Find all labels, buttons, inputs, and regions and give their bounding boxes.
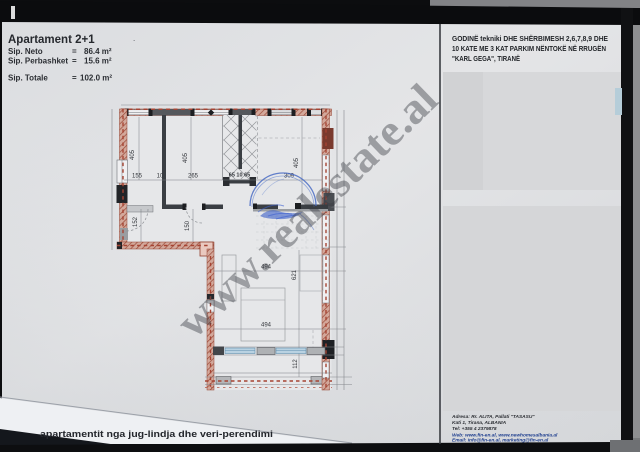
svg-text:621: 621 bbox=[292, 269, 298, 280]
svg-text:.: . bbox=[133, 34, 135, 43]
svg-text:=: = bbox=[72, 74, 77, 83]
svg-text:112: 112 bbox=[293, 359, 299, 369]
svg-text:Kati 1, Tirana, ALBANIA: Kati 1, Tirana, ALBANIA bbox=[452, 420, 507, 426]
svg-text:405: 405 bbox=[183, 152, 189, 163]
svg-text:15.6 m²: 15.6 m² bbox=[84, 57, 112, 66]
svg-text:Tel: +355 4 2379878: Tel: +355 4 2379878 bbox=[452, 426, 497, 432]
svg-text:65 10 65: 65 10 65 bbox=[229, 173, 250, 179]
svg-text:152: 152 bbox=[133, 216, 139, 227]
svg-text:apartamentit nga jug-lindja dh: apartamentit nga jug-lindja dhe veri-per… bbox=[40, 429, 273, 439]
svg-text:86.4 m²: 86.4 m² bbox=[84, 47, 112, 56]
svg-text:GODINË tekniki DHE SHËRBIMESH: GODINË tekniki DHE SHËRBIMESH 2,6,7,8,9 … bbox=[452, 34, 608, 43]
svg-text:10: 10 bbox=[157, 174, 164, 180]
svg-text:102.0 m²: 102.0 m² bbox=[80, 74, 112, 83]
svg-text:Apartament 2+1: Apartament 2+1 bbox=[8, 34, 95, 46]
svg-text:Sip. Neto: Sip. Neto bbox=[8, 47, 43, 56]
svg-text:Sip. Perbashket: Sip. Perbashket bbox=[8, 57, 68, 66]
svg-text:Sip. Totale: Sip. Totale bbox=[8, 74, 48, 83]
svg-text:405: 405 bbox=[130, 149, 136, 160]
svg-text:265: 265 bbox=[188, 174, 199, 180]
svg-text:405: 405 bbox=[294, 157, 300, 168]
svg-text:150: 150 bbox=[185, 220, 191, 231]
svg-text:494: 494 bbox=[261, 323, 272, 329]
svg-text:10 KATE ME 3 KAT PARKIM NËNTOK: 10 KATE ME 3 KAT PARKIM NËNTOKË NË RRUGË… bbox=[452, 44, 606, 53]
svg-text:Email: info@fin-en.al, marke: Email: info@fin-en.al, marketing@fin-en.… bbox=[452, 438, 549, 444]
svg-text:"KARL GEGA", TIRANË: "KARL GEGA", TIRANË bbox=[452, 54, 520, 63]
svg-text:155: 155 bbox=[132, 174, 143, 180]
svg-text:=: = bbox=[72, 57, 77, 66]
svg-text:=: = bbox=[72, 47, 77, 56]
svg-text:Adresa: Rr. ALITA, Pallati "TA: Adresa: Rr. ALITA, Pallati "TASASU" bbox=[451, 414, 535, 420]
